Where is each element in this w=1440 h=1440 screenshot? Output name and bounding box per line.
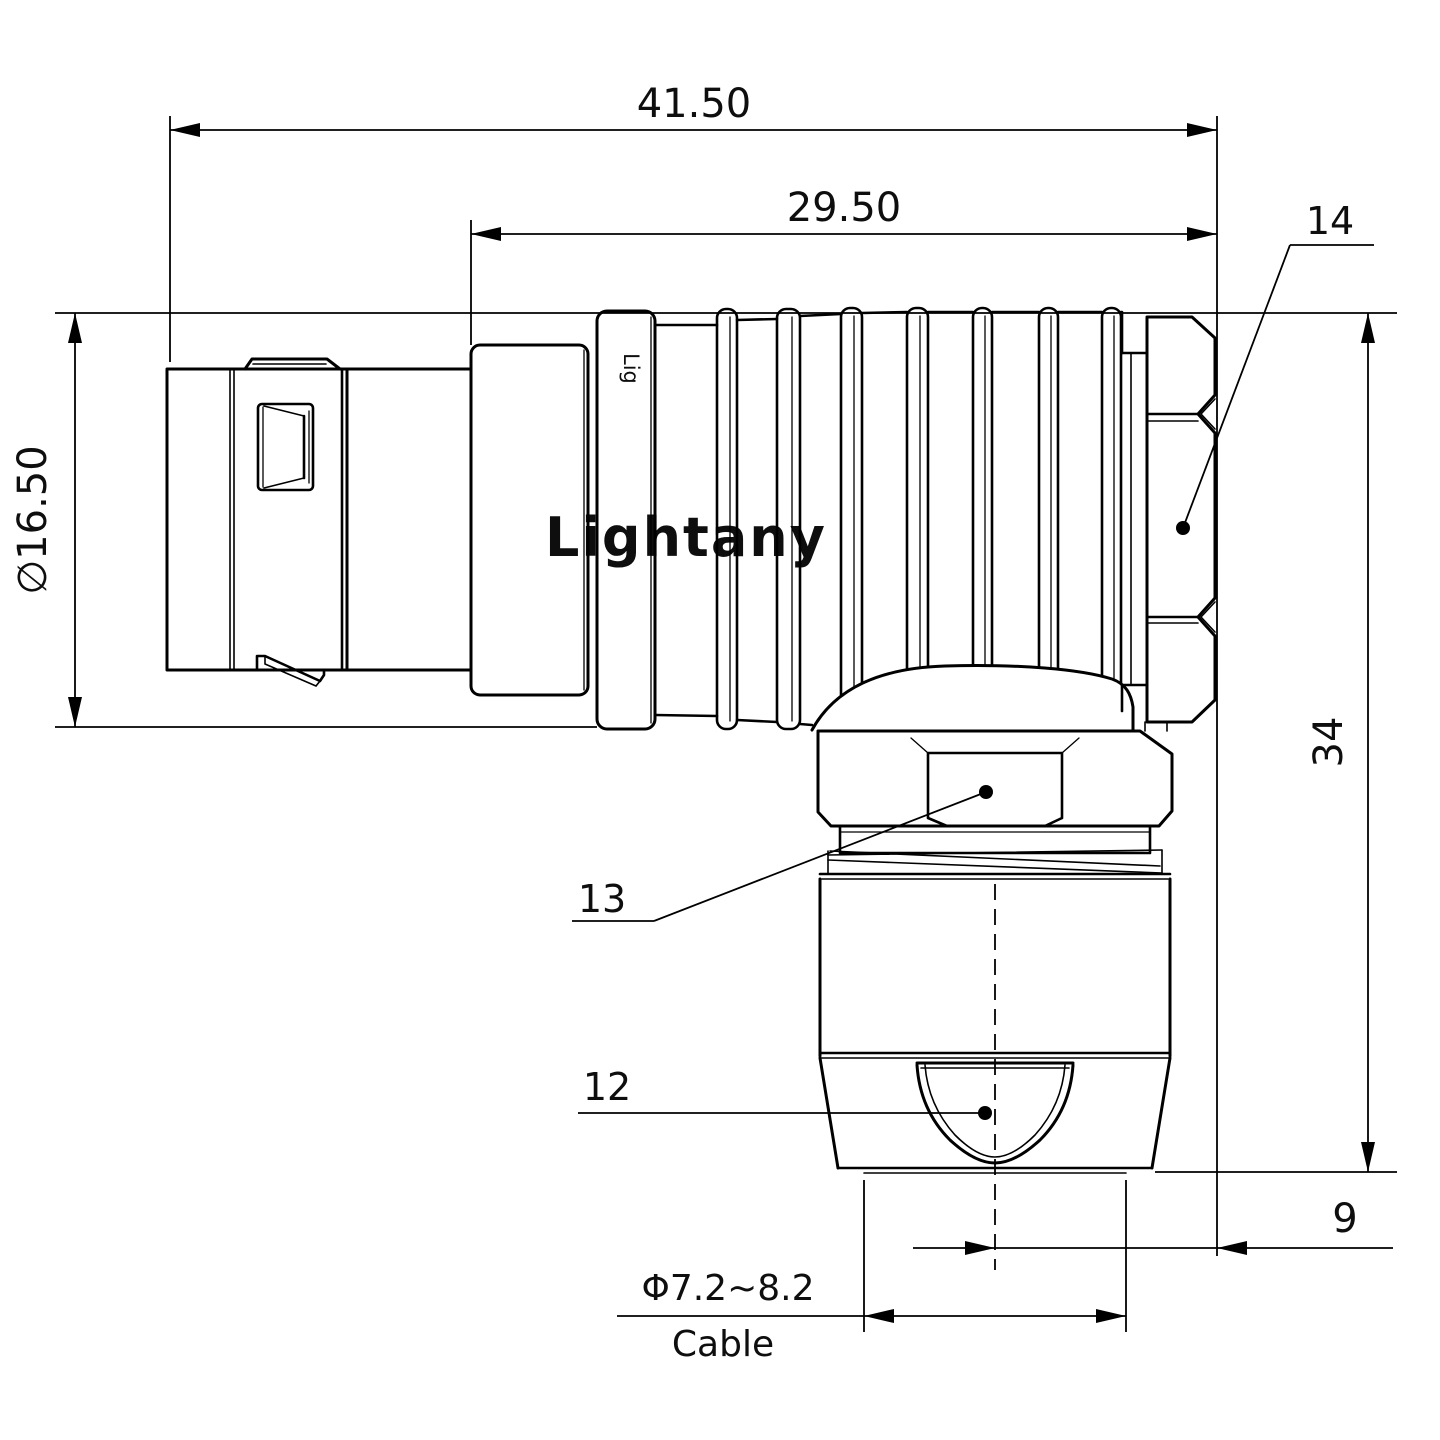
part-label-12: 12 xyxy=(583,1065,631,1109)
connector-drawing: Lightany Lig xyxy=(0,0,1440,1440)
part-label-13: 13 xyxy=(578,877,626,921)
part-label-14: 14 xyxy=(1306,199,1354,243)
leader-dot-14 xyxy=(1176,521,1190,535)
technical-drawing-page: Lightany Lig xyxy=(0,0,1440,1440)
dim-overall-height: 34 xyxy=(1306,313,1375,1172)
cable-word-label: Cable xyxy=(672,1324,774,1365)
brand-engraving-text: Lig xyxy=(619,353,643,384)
mid-tube xyxy=(347,369,471,670)
elbow-dome xyxy=(810,666,1133,733)
dim-rear-length-label: 29.50 xyxy=(787,185,902,231)
leader-dot-13 xyxy=(979,785,993,799)
extension-lines xyxy=(55,116,1397,1332)
end-cap xyxy=(1122,353,1147,711)
dim-axis-offset-label: 9 xyxy=(1332,1196,1357,1242)
dim-cable-range-label: Φ7.2~8.2 xyxy=(641,1268,814,1309)
dim-axis-offset: 9 xyxy=(913,1196,1393,1255)
grip-ribs xyxy=(717,308,1121,729)
front-shell xyxy=(167,359,347,686)
dim-cable-range: Φ7.2~8.2 Cable xyxy=(617,1268,1126,1365)
elbow-hex-nut xyxy=(818,731,1172,826)
dim-overall-height-label: 34 xyxy=(1306,717,1352,768)
dim-front-diameter: ∅16.50 xyxy=(10,313,82,727)
dim-front-diameter-label: ∅16.50 xyxy=(10,445,56,594)
dim-rear-length: 29.50 xyxy=(471,185,1217,241)
dim-overall-length-label: 41.50 xyxy=(637,81,752,127)
leader-dot-12 xyxy=(978,1106,992,1120)
dim-overall-length: 41.50 xyxy=(170,81,1217,137)
